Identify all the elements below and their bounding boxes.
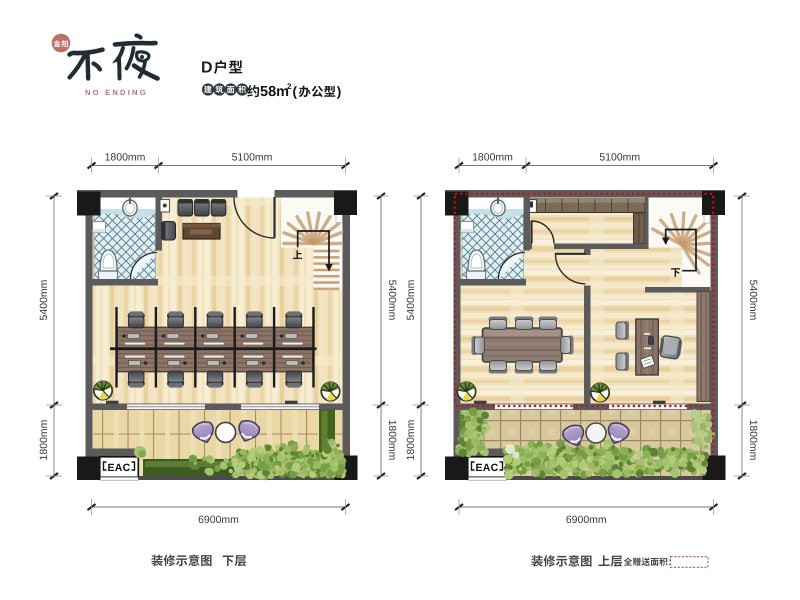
- svg-text:5400mm: 5400mm: [38, 279, 50, 320]
- svg-text:D: D: [201, 60, 213, 77]
- svg-text:5100mm: 5100mm: [232, 152, 273, 164]
- svg-text:1800mm: 1800mm: [472, 152, 513, 164]
- svg-text:1800mm: 1800mm: [38, 419, 50, 460]
- svg-text:2: 2: [287, 82, 292, 91]
- svg-text:EAC: EAC: [475, 462, 498, 474]
- svg-text:5400mm: 5400mm: [747, 280, 759, 321]
- svg-text:NO ENDING: NO ENDING: [85, 88, 148, 97]
- svg-text:58m: 58m: [260, 84, 289, 100]
- svg-text:1800mm: 1800mm: [386, 420, 398, 461]
- svg-text:6900mm: 6900mm: [566, 514, 607, 526]
- svg-text:1800mm: 1800mm: [747, 420, 759, 461]
- svg-text:): ): [337, 84, 342, 99]
- svg-text:5400mm: 5400mm: [405, 279, 417, 320]
- svg-text:6900mm: 6900mm: [198, 514, 239, 526]
- svg-text:EAC: EAC: [107, 462, 130, 474]
- svg-text:1800mm: 1800mm: [405, 419, 417, 460]
- svg-text:1800mm: 1800mm: [105, 152, 146, 164]
- svg-text:5100mm: 5100mm: [599, 152, 640, 164]
- svg-text:5400mm: 5400mm: [386, 280, 398, 321]
- svg-text:(: (: [293, 84, 298, 99]
